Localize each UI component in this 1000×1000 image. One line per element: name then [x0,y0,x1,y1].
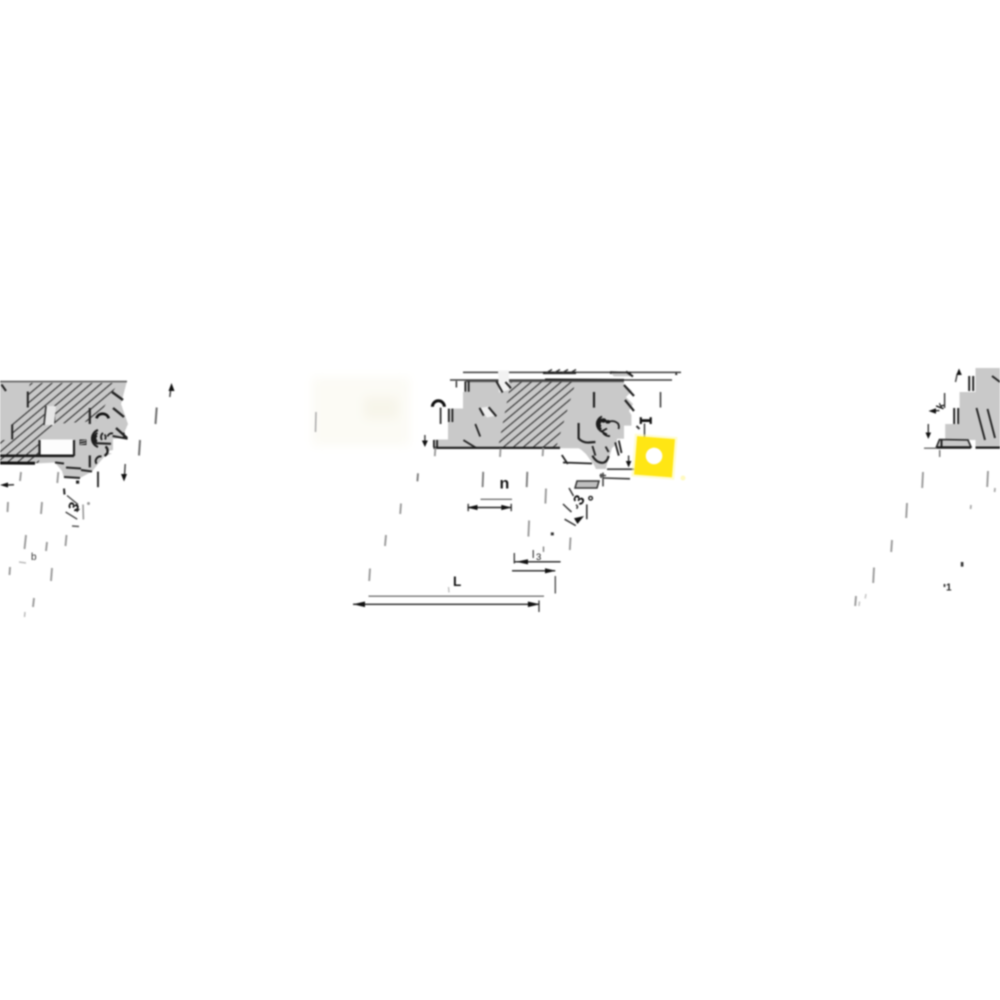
svg-text:L: L [453,574,461,589]
svg-text:b: b [31,552,37,563]
svg-text:1: 1 [946,583,952,594]
svg-text:n: n [500,476,510,493]
svg-text:l: l [532,549,534,561]
